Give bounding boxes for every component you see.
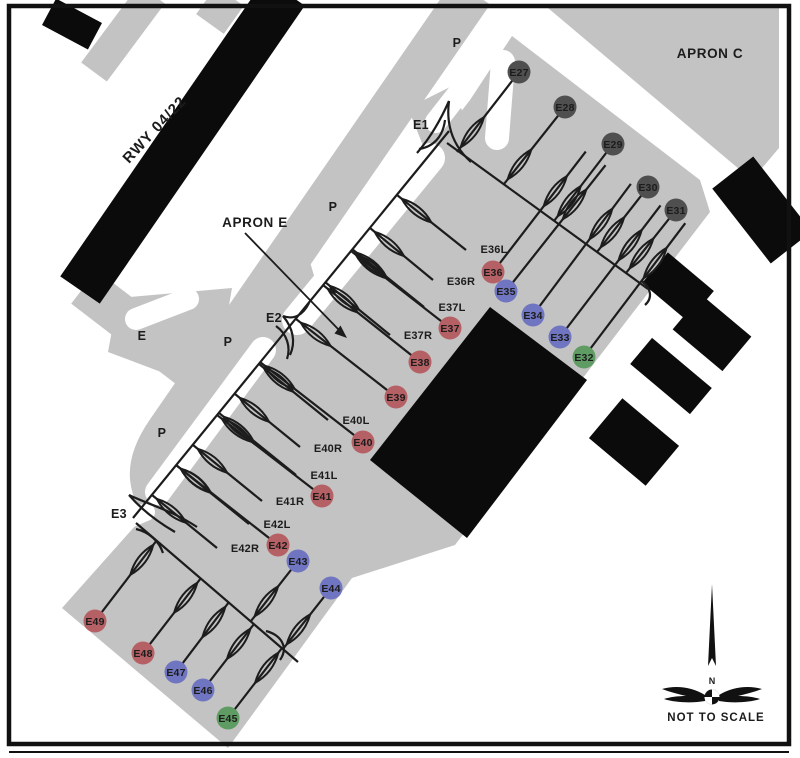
stand-sublabel-E42R: E42R bbox=[231, 543, 259, 555]
stand-label-E39: E39 bbox=[386, 392, 405, 404]
stand-sublabel-E40R: E40R bbox=[314, 443, 342, 455]
stand-label-E27: E27 bbox=[509, 67, 528, 79]
taxiway-label-P-3: P bbox=[158, 426, 167, 440]
stand-sublabel-E36L: E36L bbox=[480, 244, 507, 256]
stand-label-E35: E35 bbox=[496, 286, 515, 298]
stand-label-E43: E43 bbox=[288, 556, 307, 568]
stand-E43: E43 bbox=[287, 550, 310, 573]
stand-sublabel-E42L: E42L bbox=[263, 519, 290, 531]
taxiway-label-P-2: P bbox=[224, 335, 233, 349]
stand-sublabel-E36R: E36R bbox=[447, 276, 475, 288]
stand-E33: E33 bbox=[549, 326, 572, 349]
stand-E38: E38 bbox=[409, 351, 432, 374]
stand-label-E28: E28 bbox=[555, 102, 574, 114]
taxiway-label-E2-6: E2 bbox=[266, 311, 282, 325]
stand-E31: E31 bbox=[665, 199, 688, 222]
stand-label-E47: E47 bbox=[166, 667, 185, 679]
stand-label-E30: E30 bbox=[638, 182, 657, 194]
building-east-5 bbox=[589, 398, 679, 485]
stand-label-E41: E41 bbox=[312, 491, 331, 503]
stand-E46: E46 bbox=[192, 679, 215, 702]
north-needle-icon bbox=[708, 584, 716, 666]
stand-label-E29: E29 bbox=[603, 139, 622, 151]
stand-E29: E29 bbox=[602, 133, 625, 156]
stand-sublabel-E37L: E37L bbox=[438, 302, 465, 314]
airport-apron-chart: RWY 04/22 E27E28E29E30E31E36E35E34E33E32… bbox=[0, 0, 800, 758]
taxiway-label-E1-5: E1 bbox=[413, 118, 429, 132]
stand-label-E42: E42 bbox=[268, 540, 287, 552]
taxiway-label-E-4: E bbox=[138, 329, 147, 343]
stand-E45: E45 bbox=[217, 707, 240, 730]
stand-E40: E40 bbox=[352, 431, 375, 454]
winged-globe-icon bbox=[662, 687, 762, 705]
right-wing bbox=[719, 687, 762, 702]
left-wing bbox=[662, 687, 705, 702]
taxiway-label-P-0: P bbox=[453, 36, 462, 50]
stand-sublabel-E40L: E40L bbox=[342, 415, 369, 427]
apron-e-label: APRON E bbox=[222, 215, 288, 230]
stand-E36: E36 bbox=[482, 261, 505, 284]
stand-label-E31: E31 bbox=[666, 205, 685, 217]
stand-sublabel-E37R: E37R bbox=[404, 330, 432, 342]
stand-label-E33: E33 bbox=[550, 332, 569, 344]
stand-label-E32: E32 bbox=[574, 352, 593, 364]
stand-E32: E32 bbox=[573, 346, 596, 369]
stand-label-E38: E38 bbox=[410, 357, 429, 369]
taxiway-strip-northwest bbox=[94, 0, 152, 72]
taxiway-strip-runway-edge bbox=[210, 0, 230, 24]
stand-label-E40: E40 bbox=[353, 437, 372, 449]
taxiway-label-E3-7: E3 bbox=[111, 507, 127, 521]
stand-E39: E39 bbox=[385, 386, 408, 409]
stand-label-E34: E34 bbox=[523, 310, 542, 322]
stand-label-E49: E49 bbox=[85, 616, 104, 628]
stand-E41: E41 bbox=[311, 485, 334, 508]
stand-E42: E42 bbox=[267, 534, 290, 557]
stand-E28: E28 bbox=[554, 96, 577, 119]
stand-label-E46: E46 bbox=[193, 685, 212, 697]
stand-E47: E47 bbox=[165, 661, 188, 684]
stand-E35: E35 bbox=[495, 280, 518, 303]
stand-E44: E44 bbox=[320, 577, 343, 600]
apron-c-label: APRON C bbox=[677, 46, 743, 61]
airport-apron-chart-page: RWY 04/22 E27E28E29E30E31E36E35E34E33E32… bbox=[0, 0, 800, 758]
stand-E34: E34 bbox=[522, 304, 545, 327]
stand-E37: E37 bbox=[439, 317, 462, 340]
stand-label-E36: E36 bbox=[483, 267, 502, 279]
stand-label-E44: E44 bbox=[321, 583, 340, 595]
stand-E48: E48 bbox=[132, 642, 155, 665]
stand-label-E48: E48 bbox=[133, 648, 152, 660]
stand-sublabel-E41L: E41L bbox=[310, 470, 337, 482]
globe-quarter-1 bbox=[712, 690, 720, 698]
stand-E30: E30 bbox=[637, 176, 660, 199]
compass: N NOT TO SCALE bbox=[662, 584, 765, 724]
stand-E27: E27 bbox=[508, 61, 531, 84]
stand-label-E37: E37 bbox=[440, 323, 459, 335]
not-to-scale-label: NOT TO SCALE bbox=[667, 712, 764, 724]
stand-sublabel-E41R: E41R bbox=[276, 496, 304, 508]
globe-quarter-2 bbox=[705, 697, 713, 705]
stand-E49: E49 bbox=[84, 610, 107, 633]
taxiway-label-P-1: P bbox=[329, 200, 338, 214]
north-label: N bbox=[709, 676, 716, 686]
stand-label-E45: E45 bbox=[218, 713, 237, 725]
